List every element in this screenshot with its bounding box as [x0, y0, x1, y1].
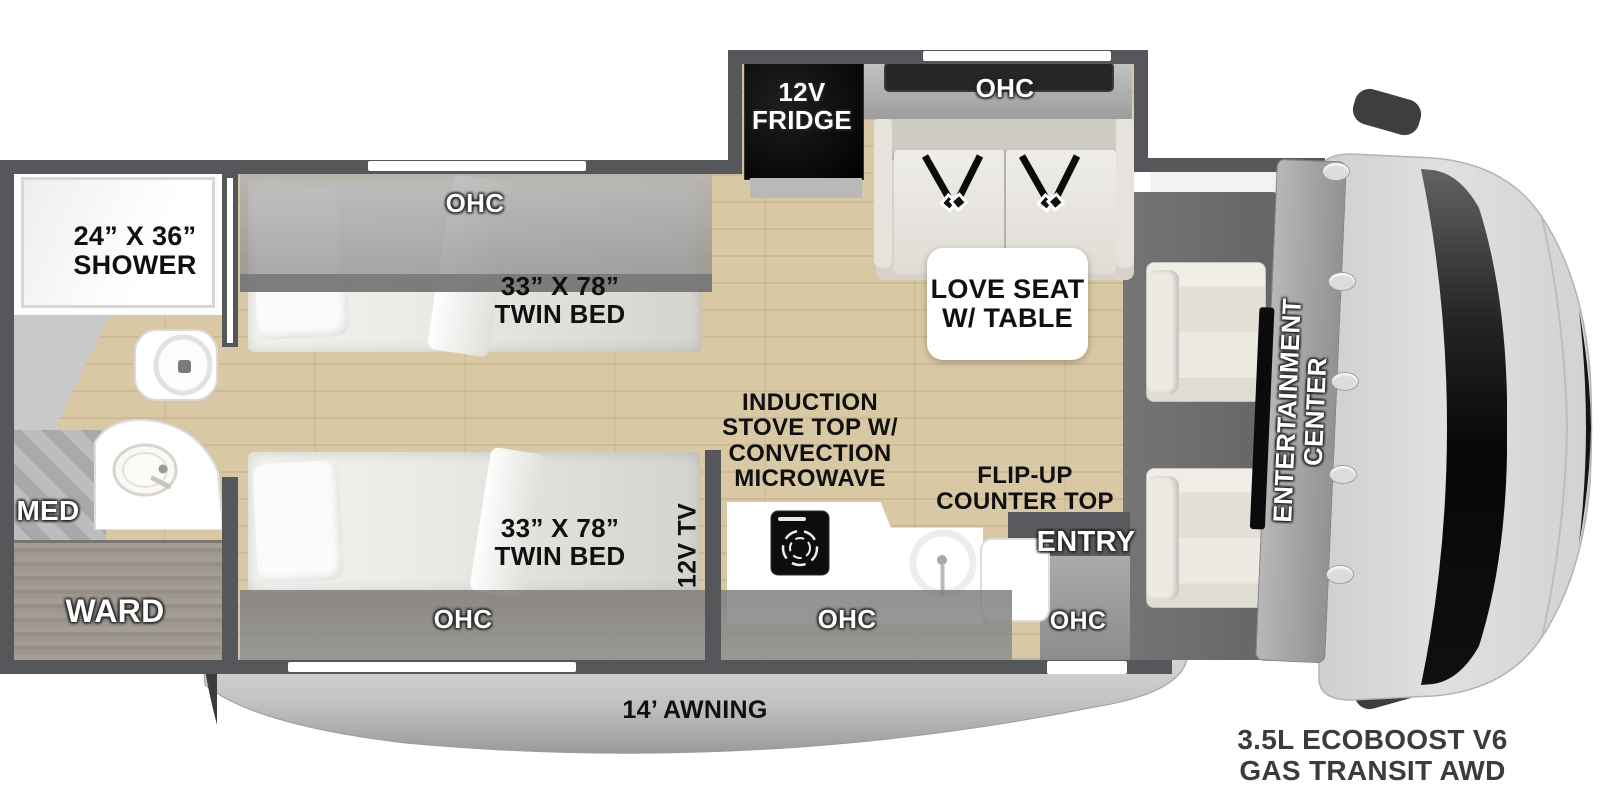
corner-sink [95, 420, 223, 530]
awning-label: 14’ AWNING [610, 697, 780, 724]
shower-label: 24” X 36” SHOWER [40, 222, 230, 280]
toilet [135, 330, 217, 400]
fridge-label: 12V FRIDGE [752, 78, 852, 134]
wall-bathroom-lower [222, 477, 238, 660]
rivet [1329, 465, 1357, 484]
chassis-label: 3.5L ECOBOOST V6 GAS TRANSIT AWD [1200, 725, 1545, 787]
flip-up-label: FLIP-UP COUNTER TOP [930, 463, 1120, 515]
seat-belts [880, 140, 1130, 224]
stove-label: INDUCTION STOVE TOP W/ CONVECTION MICROW… [700, 390, 920, 492]
love-seat-callout: LOVE SEAT W/ TABLE [927, 248, 1088, 360]
window-top [368, 161, 586, 171]
ohc-rear-label: OHC [420, 189, 530, 217]
twin-bed-front-label: 33” X 78” TWIN BED [460, 514, 660, 570]
rivet [1326, 565, 1354, 584]
pillow-front [252, 460, 344, 584]
rivet [1322, 162, 1350, 181]
wall-bottom-cab [1127, 660, 1172, 674]
window-bottom [288, 662, 576, 672]
ohc-galley-label: OHC [792, 605, 902, 633]
ohc-front-label: OHC [408, 605, 518, 633]
fridge-base [750, 178, 862, 198]
wall-rear [0, 160, 14, 674]
wall-slideout-left [728, 50, 742, 174]
entertainment-center-label: ENTERTAINMENT CENTER [1268, 298, 1334, 525]
window-slideout [923, 51, 1111, 61]
ward-label: WARD [30, 594, 200, 629]
seat-back [1147, 476, 1179, 600]
seat-back [1147, 270, 1179, 394]
love-seat-label: LOVE SEAT W/ TABLE [931, 275, 1085, 333]
cab-seat-driver [1146, 262, 1266, 402]
mirror-top-icon [1349, 85, 1424, 138]
twin-bed-rear-label: 33” X 78” TWIN BED [460, 272, 660, 328]
entry-door-opening [1047, 661, 1127, 674]
ohc-entry-label: OHC [1028, 608, 1128, 635]
rivet [1328, 272, 1356, 291]
rv-floorplan: ENTERTAINMENT CENTER 24” X 36” SHOWER ME… [0, 0, 1600, 789]
cab-seat-passenger [1146, 468, 1266, 608]
rivet [1331, 372, 1359, 391]
tv-label: 12V TV [675, 486, 702, 606]
wall-slideout-right [1134, 50, 1148, 172]
bathroom-fixtures [90, 320, 230, 530]
med-label: MED [12, 496, 84, 526]
ohc-lounge-label: OHC [950, 74, 1060, 102]
induction-stove [770, 510, 830, 576]
entry-label: ENTRY [1036, 527, 1136, 558]
